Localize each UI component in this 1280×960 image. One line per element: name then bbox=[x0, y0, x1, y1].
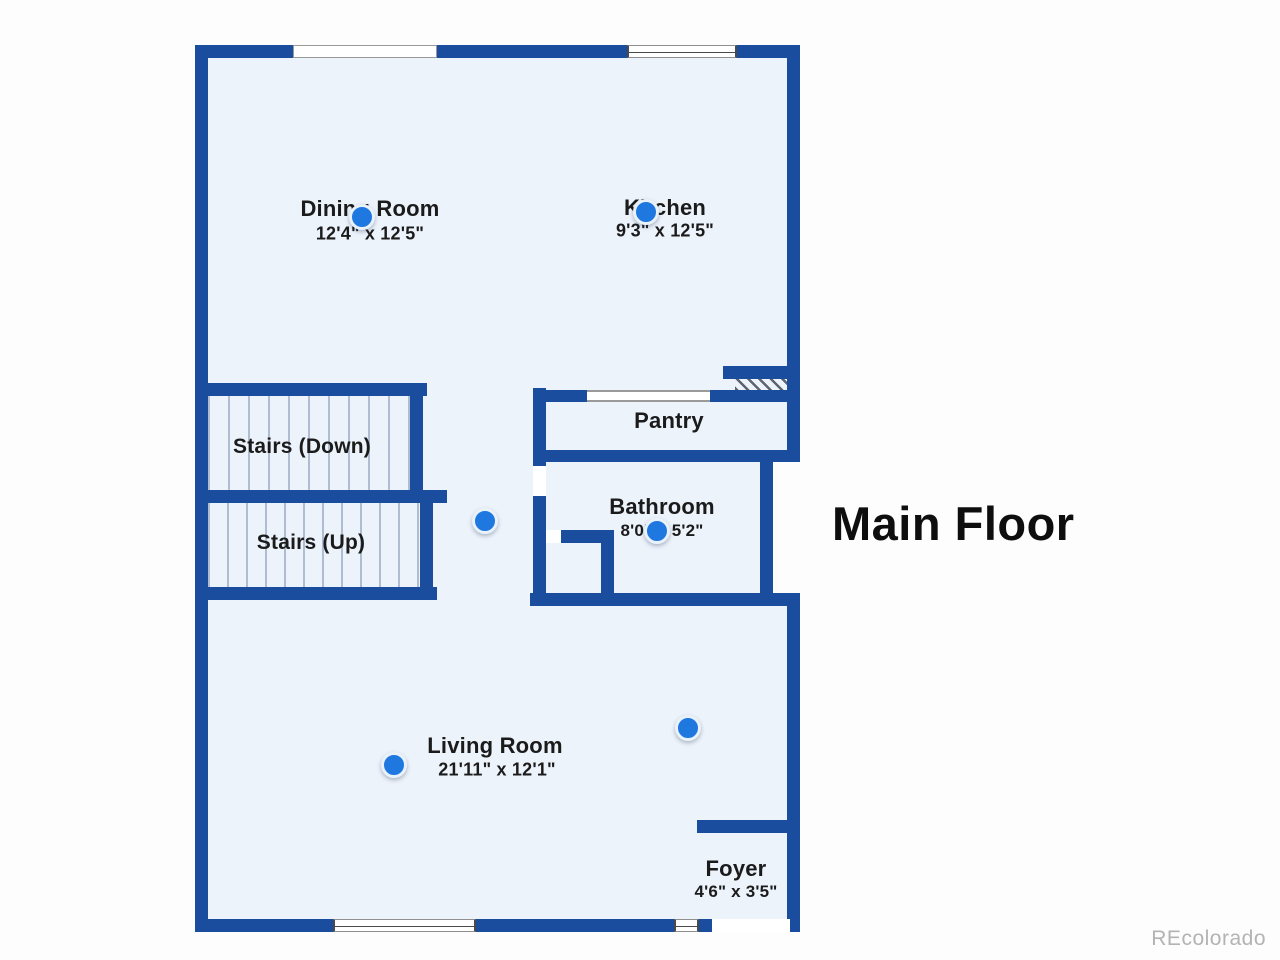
exterior-notch bbox=[773, 462, 800, 593]
wall-bathroom-bottom bbox=[530, 593, 800, 606]
floorplan-canvas: Dining Room 12'4" x 12'5" Kitchen 9'3" x… bbox=[0, 0, 1280, 960]
wall-stairs-top bbox=[195, 383, 427, 396]
room-dims-living: 21'11" x 12'1" bbox=[438, 760, 556, 781]
room-dims-kitchen: 9'3" x 12'5" bbox=[616, 221, 714, 242]
wall bbox=[787, 593, 800, 932]
wall bbox=[790, 919, 800, 932]
pantry-door-opening bbox=[587, 390, 710, 402]
photo-marker-dining[interactable] bbox=[349, 204, 375, 230]
room-label-stairs-up: Stairs (Up) bbox=[257, 531, 365, 555]
wall-bathroom-right bbox=[760, 450, 773, 605]
wall bbox=[699, 919, 712, 932]
wall-stairs-middle bbox=[195, 490, 447, 503]
wall bbox=[195, 919, 333, 932]
room-label-foyer: Foyer bbox=[706, 856, 767, 882]
bathroom-door-opening bbox=[533, 466, 546, 496]
photo-marker-kitchen[interactable] bbox=[633, 199, 659, 225]
wall-stairs-up-right bbox=[420, 497, 433, 600]
wall-stairs-down-right bbox=[410, 383, 423, 497]
wall-kitchen-bump bbox=[723, 366, 800, 379]
hatch-area bbox=[735, 379, 787, 390]
window-marker bbox=[293, 45, 437, 58]
watermark: REcolorado bbox=[1151, 927, 1266, 951]
wall-pantry-top-right bbox=[710, 390, 800, 402]
wall bbox=[195, 45, 208, 932]
closet-door-opening bbox=[546, 530, 561, 543]
window-marker bbox=[674, 919, 699, 932]
room-label-bathroom: Bathroom bbox=[609, 494, 715, 520]
room-dims-foyer: 4'6" x 3'5" bbox=[694, 882, 777, 902]
photo-marker-hallway[interactable] bbox=[472, 508, 498, 534]
photo-marker-bathroom[interactable] bbox=[644, 518, 670, 544]
photo-marker-living-1[interactable] bbox=[381, 752, 407, 778]
wall bbox=[195, 45, 293, 58]
wall-stairs-bottom bbox=[195, 587, 437, 600]
wall-foyer bbox=[697, 820, 800, 833]
floor-title: Main Floor bbox=[832, 496, 1075, 551]
room-label-pantry: Pantry bbox=[634, 408, 704, 434]
wall-pantry-top-left bbox=[533, 390, 587, 402]
room-label-stairs-down: Stairs (Down) bbox=[233, 435, 371, 459]
wall bbox=[476, 919, 674, 932]
window-marker bbox=[627, 45, 737, 58]
entry-door-opening bbox=[712, 919, 790, 932]
photo-marker-living-2[interactable] bbox=[675, 715, 701, 741]
window-marker bbox=[333, 919, 476, 932]
wall bbox=[437, 45, 627, 58]
room-label-living: Living Room bbox=[427, 733, 562, 759]
wall-bathroom-left bbox=[533, 496, 546, 606]
